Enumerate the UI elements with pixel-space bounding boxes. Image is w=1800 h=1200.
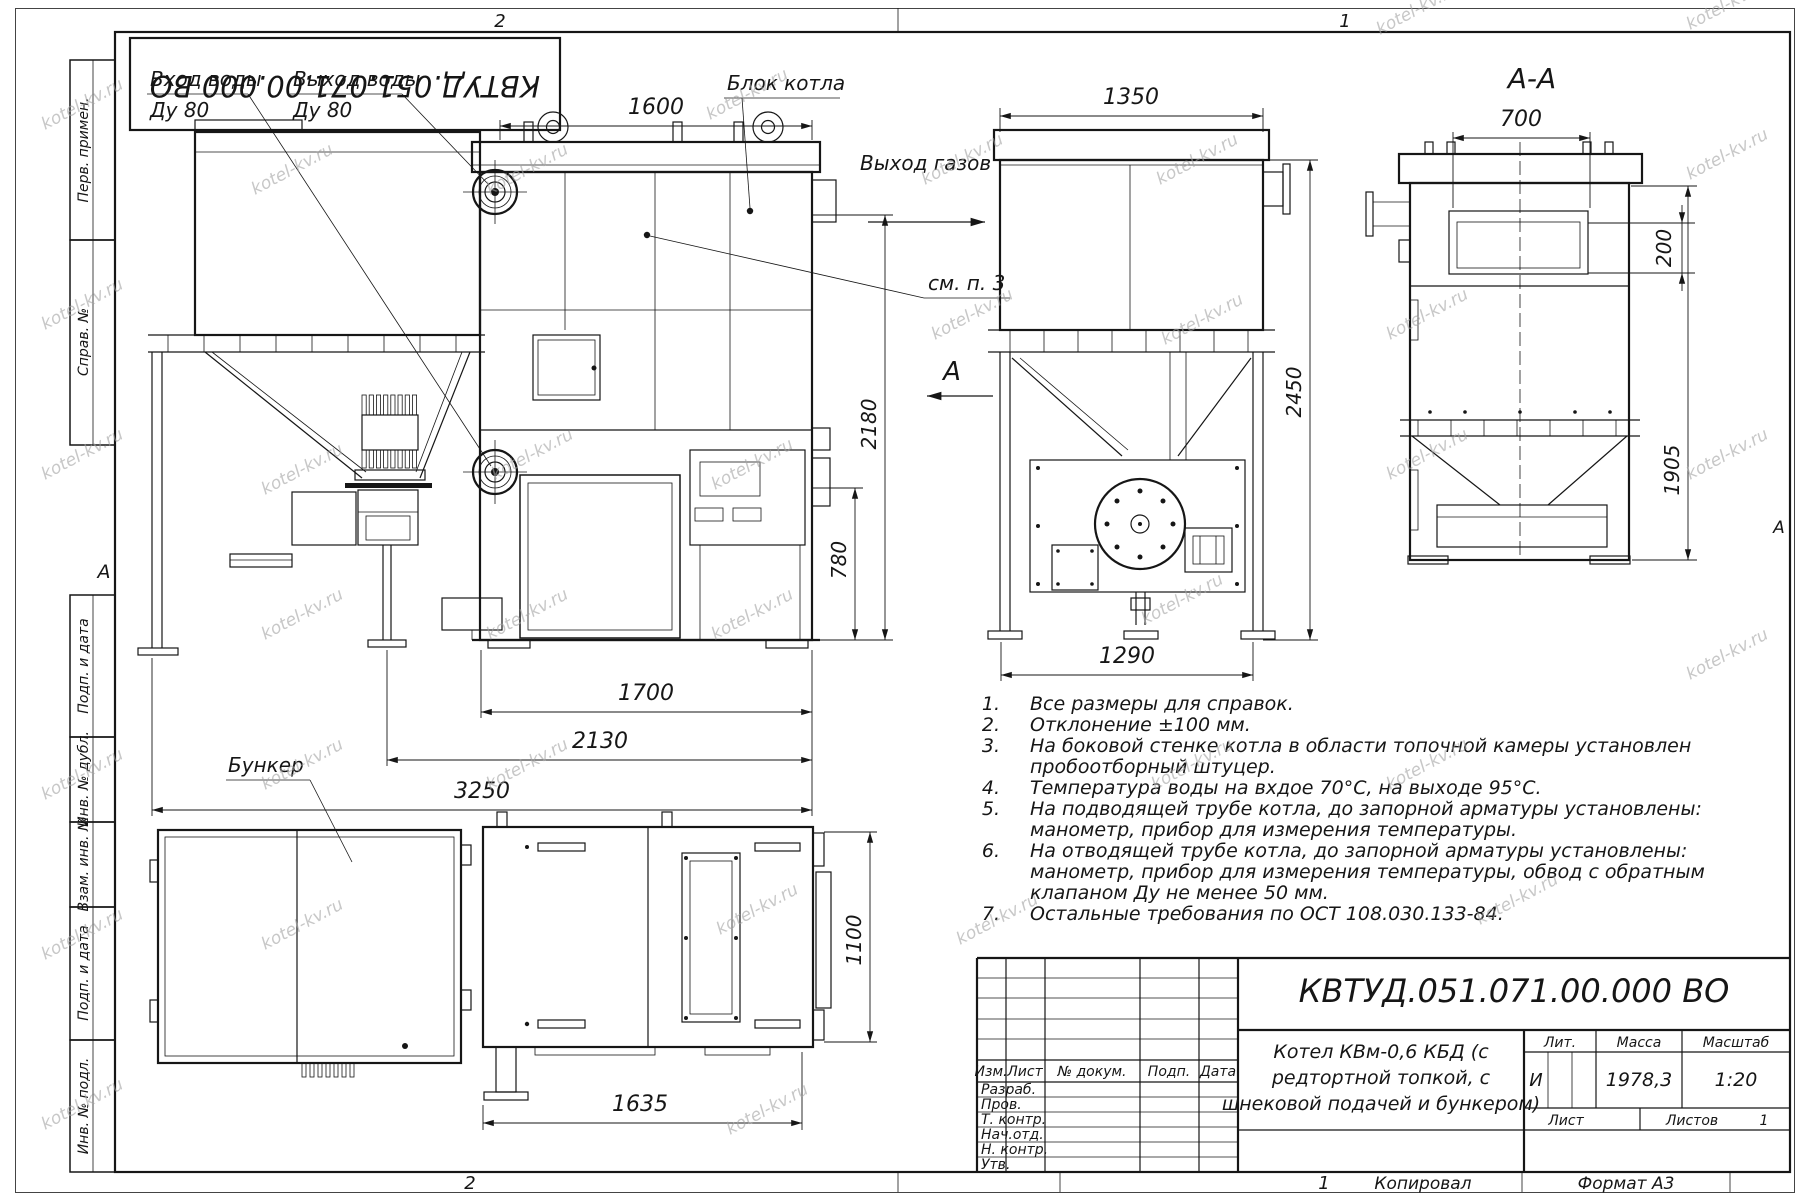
zone-number-top-right: 1 bbox=[1339, 11, 1350, 32]
watermark-text: kotel-kv.ru bbox=[1683, 124, 1772, 184]
dim-front-w1: 1700 bbox=[618, 681, 674, 706]
margin-letter-left: А bbox=[96, 561, 111, 583]
dim-section-height: 1905 bbox=[1660, 445, 1684, 496]
dim-plan-width: 1635 bbox=[612, 1092, 668, 1117]
margin-letter-right: А bbox=[1772, 518, 1785, 538]
note-6-line-1: На отводящей трубе котла, до запорной ар… bbox=[1030, 840, 1687, 862]
view-plan bbox=[150, 812, 831, 1100]
note-5-line-1: На подводящей трубе котла, до запорной а… bbox=[1030, 798, 1702, 820]
title-mass-label: Масса bbox=[1617, 1035, 1662, 1051]
zone-number-bottom-right: 1 bbox=[1318, 1173, 1329, 1194]
title-name-line3: шнековой подачей и бункером) bbox=[1222, 1093, 1540, 1115]
title-sheet-label: Лист bbox=[1547, 1113, 1584, 1129]
watermark-text: kotel-kv.ru bbox=[1383, 424, 1472, 484]
note-num-2: 2. bbox=[982, 714, 1000, 736]
note-6-line-3: клапаном Ду не менее 50 мм. bbox=[1030, 882, 1329, 904]
note-num-6: 6. bbox=[982, 840, 1000, 862]
callout-water-in-line1: Вход воды bbox=[150, 67, 262, 91]
watermark-text: kotel-kv.ru bbox=[258, 894, 347, 954]
dim-rear-bottom: 1290 bbox=[1099, 644, 1155, 669]
title-lit-value: И bbox=[1529, 1070, 1542, 1091]
note-1-line-1: Все размеры для справок. bbox=[1030, 693, 1294, 715]
title-col-sign: Подп. bbox=[1148, 1064, 1190, 1080]
watermark-text: kotel-kv.ru bbox=[1683, 424, 1772, 484]
title-scale-value: 1:20 bbox=[1715, 1069, 1758, 1091]
watermark-text: kotel-kv.ru bbox=[258, 439, 347, 499]
watermark-text: kotel-kv.ru bbox=[1683, 0, 1772, 34]
watermark-text: kotel-kv.ru bbox=[258, 584, 347, 644]
title-row-prov: Пров. bbox=[981, 1097, 1022, 1113]
note-6-line-2: манометр, прибор для измерения температу… bbox=[1030, 861, 1705, 883]
title-doc-number: КВТУД.051.071.00.000 ВО bbox=[1299, 972, 1730, 1010]
dim-front-w2: 2130 bbox=[572, 729, 628, 754]
dim-plan-depth: 1100 bbox=[842, 915, 866, 966]
dim-section-offset: 200 bbox=[1652, 229, 1676, 267]
view-rear bbox=[988, 130, 1290, 639]
title-row-nkontr: Н. контр. bbox=[981, 1142, 1048, 1158]
title-row-utv: Утв. bbox=[981, 1157, 1010, 1173]
title-lit-label: Лит. bbox=[1543, 1035, 1576, 1051]
watermark-text: kotel-kv.ru bbox=[483, 584, 572, 644]
dim-front-top: 1600 bbox=[628, 95, 684, 120]
note-3-line-1: На боковой стенке котла в области топочн… bbox=[1030, 735, 1691, 757]
dim-front-height: 2180 bbox=[857, 399, 881, 450]
title-row-razrab: Разраб. bbox=[981, 1082, 1036, 1098]
dim-section-top: 700 bbox=[1500, 107, 1542, 132]
note-2-line-1: Отклонение ±100 мм. bbox=[1030, 714, 1251, 736]
watermark-text: kotel-kv.ru bbox=[248, 139, 337, 199]
zone-number-top-left: 2 bbox=[494, 11, 505, 32]
title-row-nachotd: Нач.отд. bbox=[981, 1127, 1044, 1143]
dim-front-lower: 780 bbox=[827, 541, 851, 579]
drawing-sheet: 2 1 2 1 Копировал Формат А3 А А Перв. пр… bbox=[0, 0, 1800, 1200]
sidebar-item-podp-data-1: Подп. и дата bbox=[76, 618, 92, 713]
watermark-text: kotel-kv.ru bbox=[483, 734, 572, 794]
note-num-1: 1. bbox=[982, 693, 1000, 715]
watermark-text: kotel-kv.ru bbox=[953, 889, 1042, 949]
note-num-4: 4. bbox=[982, 777, 1000, 799]
note-4-line-1: Температура воды на вхдое 70°С, на выход… bbox=[1030, 777, 1542, 799]
watermark-text: kotel-kv.ru bbox=[1138, 569, 1227, 629]
title-col-doc: № докум. bbox=[1056, 1064, 1126, 1080]
title-col-list: Лист bbox=[1006, 1064, 1043, 1080]
copied-label: Копировал bbox=[1374, 1174, 1471, 1194]
callout-water-out-line1: Выход воды bbox=[293, 67, 420, 91]
blueprint-svg: 2 1 2 1 Копировал Формат А3 А А Перв. пр… bbox=[0, 0, 1800, 1200]
sidebar-item-sprav-no: Справ. № bbox=[76, 308, 92, 376]
view-section-dimensions: 700 200 1905 bbox=[1453, 107, 1697, 560]
title-col-date: Дата bbox=[1199, 1064, 1236, 1080]
title-mass-value: 1978,3 bbox=[1606, 1069, 1672, 1091]
title-name-line1: Котел КВм-0,6 КБД (с bbox=[1273, 1041, 1489, 1063]
title-col-izm: Изм. bbox=[975, 1064, 1008, 1080]
format-label: Формат А3 bbox=[1578, 1174, 1675, 1194]
watermark-text: kotel-kv.ru bbox=[1683, 624, 1772, 684]
dim-rear-height: 2450 bbox=[1282, 367, 1306, 418]
title-row-tkontr: Т. контр. bbox=[981, 1112, 1046, 1128]
callout-water-in-line2: Ду 80 bbox=[149, 98, 209, 122]
title-scale-label: Масштаб bbox=[1703, 1035, 1770, 1051]
watermark-text: kotel-kv.ru bbox=[1158, 289, 1247, 349]
watermark-text: kotel-kv.ru bbox=[1383, 284, 1472, 344]
dim-rear-top: 1350 bbox=[1103, 85, 1159, 110]
callout-water-out-line2: Ду 80 bbox=[292, 98, 352, 122]
watermark-text: kotel-kv.ru bbox=[723, 1079, 812, 1139]
section-view-title: А-А bbox=[1506, 62, 1556, 95]
title-sheets-count: 1 bbox=[1760, 1113, 1769, 1129]
watermark-text: kotel-kv.ru bbox=[713, 879, 802, 939]
note-5-line-2: манометр, прибор для измерения температу… bbox=[1030, 819, 1517, 841]
watermark-text: kotel-kv.ru bbox=[38, 424, 127, 484]
title-sheets-label: Листов bbox=[1665, 1113, 1718, 1129]
watermark-text: kotel-kv.ru bbox=[708, 434, 797, 494]
sidebar-item-vzam-inv: Взам. инв. № bbox=[76, 816, 92, 911]
sidebar-margin-boxes: Перв. примен. Справ. № Подп. и дата Инв.… bbox=[70, 60, 115, 1172]
note-num-3: 3. bbox=[982, 735, 1000, 757]
view-front bbox=[138, 112, 836, 655]
notes-block: 1. Все размеры для справок. 2. Отклонени… bbox=[982, 693, 1705, 925]
note-num-5: 5. bbox=[982, 798, 1000, 820]
title-name-line2: редтортной топкой, с bbox=[1271, 1067, 1491, 1089]
zone-number-bottom-left: 2 bbox=[464, 1173, 475, 1194]
watermark-text: kotel-kv.ru bbox=[1373, 0, 1462, 39]
watermark-text: kotel-kv.ru bbox=[708, 584, 797, 644]
note-7-line-1: Остальные требования по ОСТ 108.030.133-… bbox=[1030, 903, 1504, 925]
section-arrow-letter: А bbox=[941, 357, 961, 387]
title-block: КВТУД.051.071.00.000 ВО Котел КВм-0,6 КБ… bbox=[975, 958, 1790, 1173]
